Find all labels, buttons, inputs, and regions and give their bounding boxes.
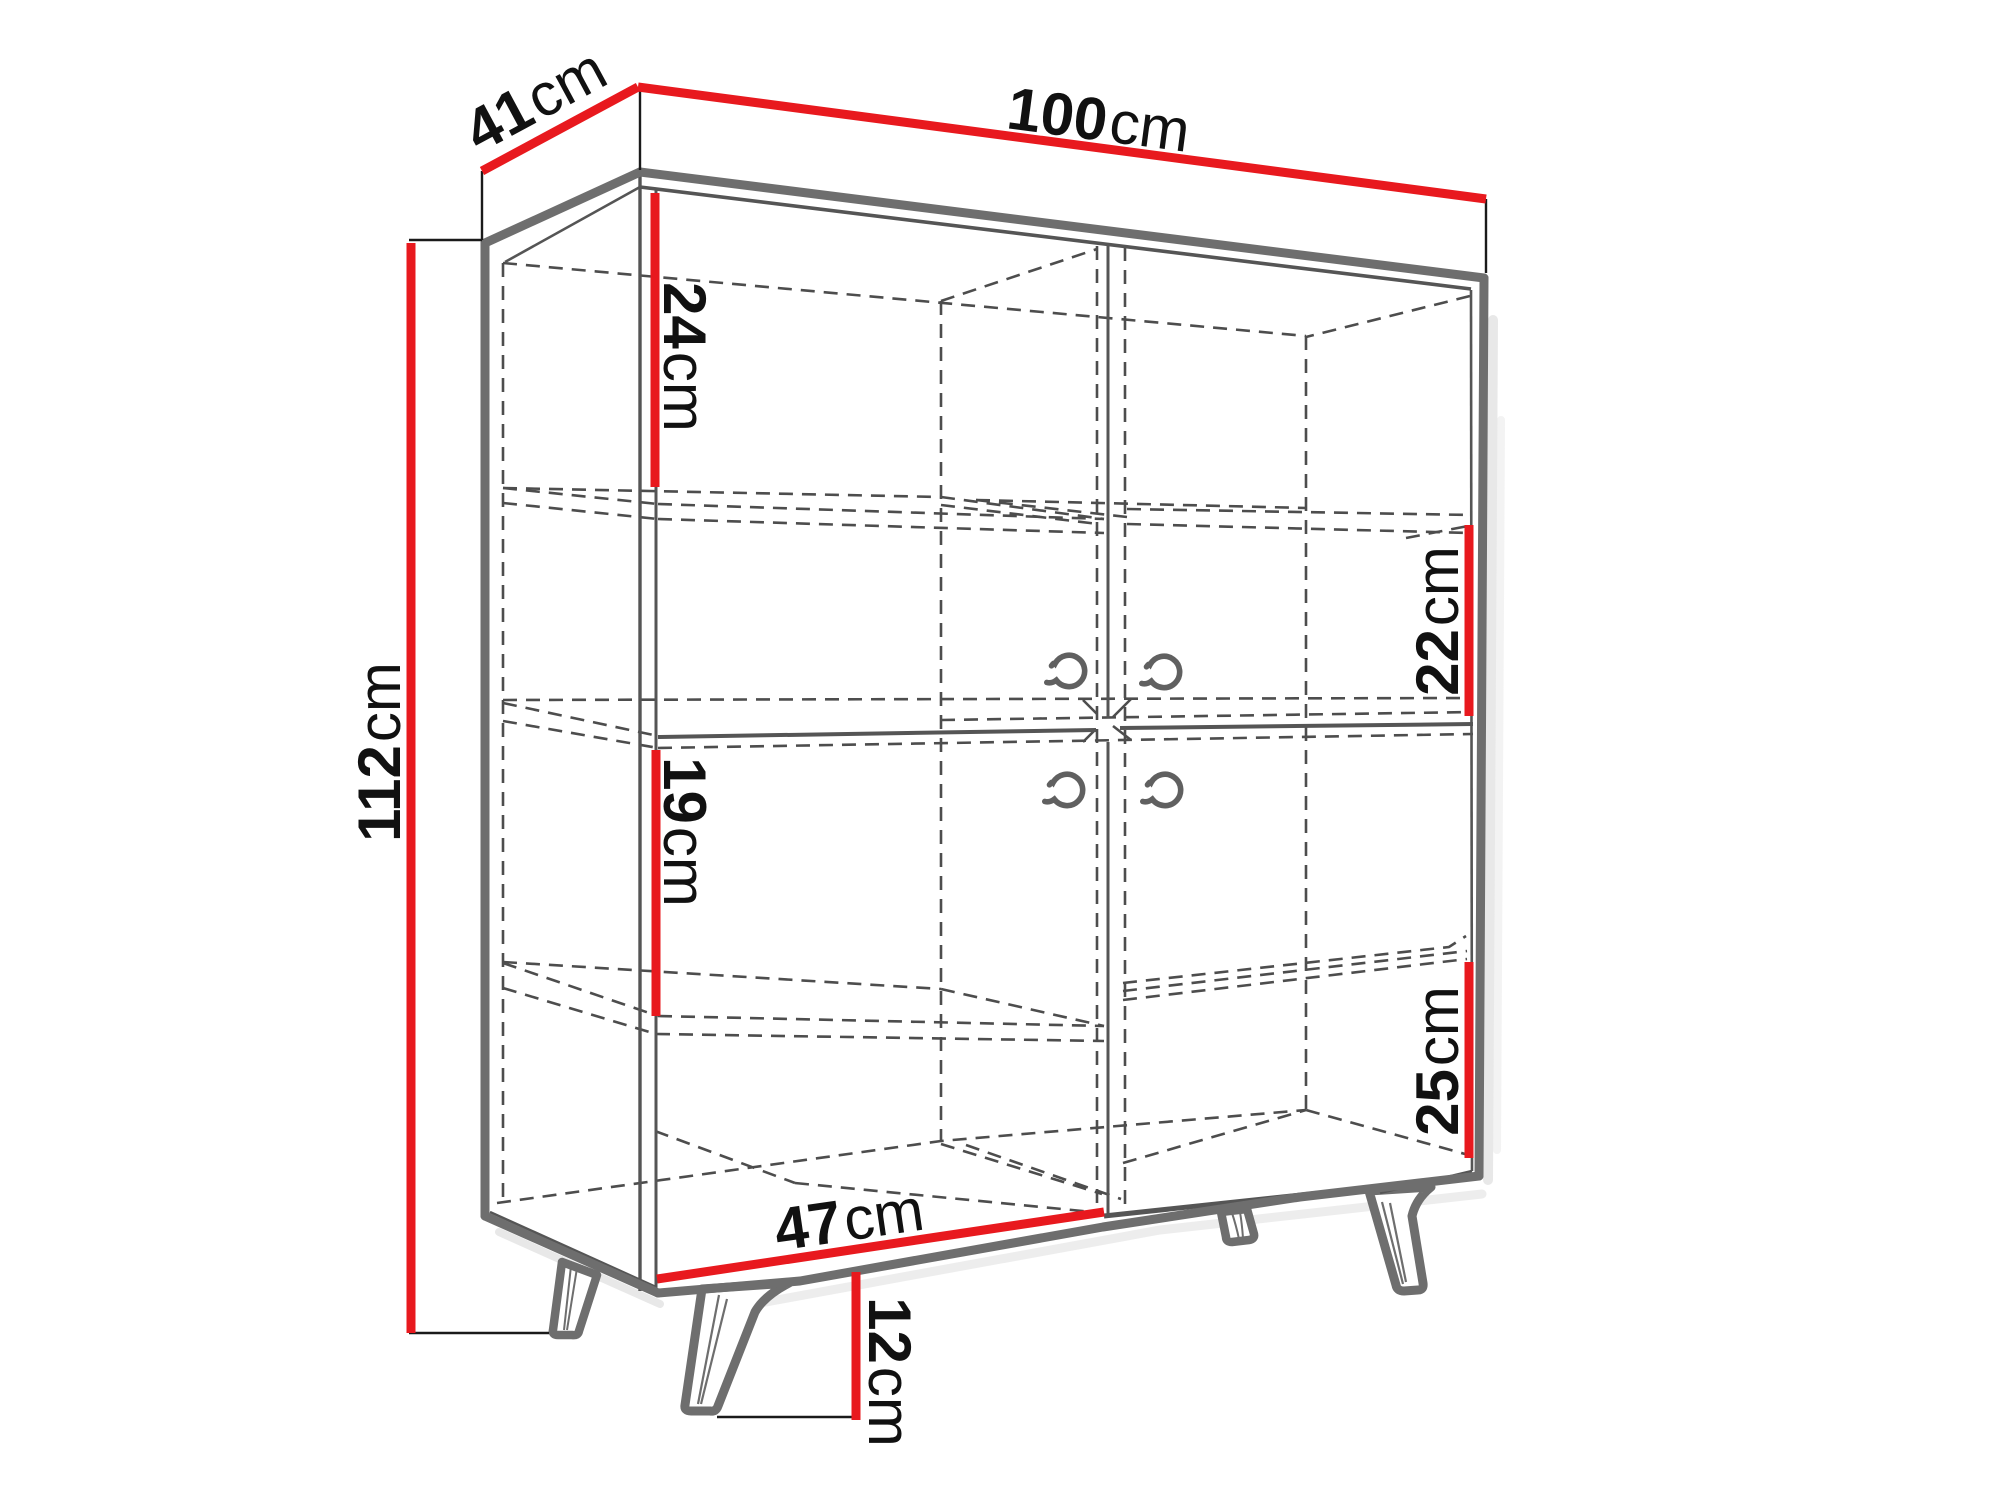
svg-text:22cm: 22cm bbox=[1404, 546, 1471, 696]
svg-text:25cm: 25cm bbox=[1404, 986, 1471, 1136]
svg-text:19cm: 19cm bbox=[651, 757, 718, 907]
svg-text:112cm: 112cm bbox=[346, 662, 413, 842]
svg-text:12cm: 12cm bbox=[856, 1297, 923, 1447]
svg-text:24cm: 24cm bbox=[651, 282, 718, 432]
